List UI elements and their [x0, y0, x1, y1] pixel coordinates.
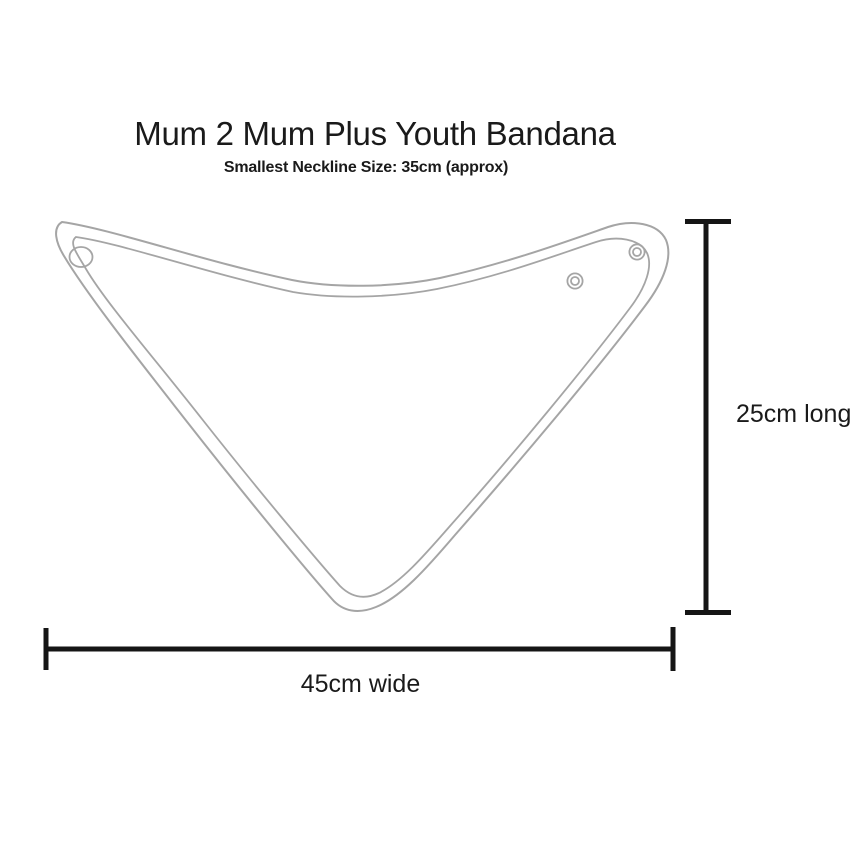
length-dimension-line — [685, 221, 731, 613]
snap-stud-right-mid-icon — [567, 273, 582, 288]
width-dimension-line — [46, 627, 673, 671]
length-label: 25cm long — [736, 400, 851, 429]
bandana-stitch-line — [73, 237, 649, 597]
bandana-diagram — [0, 0, 853, 853]
bandana-outline — [56, 222, 668, 611]
snap-stud-right-tip-icon — [629, 244, 644, 259]
diagram-canvas: Mum 2 Mum Plus Youth Bandana Smallest Ne… — [0, 0, 853, 853]
width-label: 45cm wide — [0, 670, 721, 699]
snap-stud-left-icon — [70, 247, 93, 267]
